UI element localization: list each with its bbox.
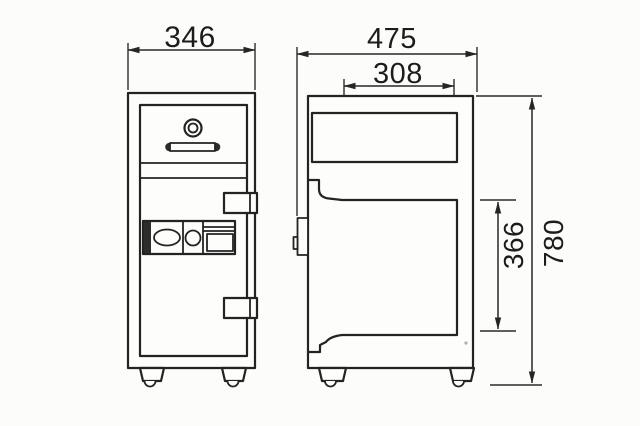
side-right-foot-body [450,368,474,381]
side-lock-spindle [294,218,309,255]
side-right-foot [450,368,474,387]
hinge-bottom-body [224,298,257,318]
pull-handle [165,143,220,152]
front-right-foot [222,368,246,387]
front-right-foot-roller [228,381,239,387]
lock-panel-hatch-strip [144,222,151,253]
front-right-foot-body [222,368,246,381]
lock-panel-outline [143,221,235,254]
safe-dimension-diagram: 346 475 308 366 780 [0,0,640,426]
front-left-foot-roller [145,381,156,387]
front-left-foot [140,368,164,387]
hinge-bottom [224,298,257,318]
dim-475-label: 475 [367,23,417,55]
handle-bar [170,143,215,151]
side-left-foot-roller [325,381,336,387]
dim-front-width: 346 [128,21,255,90]
front-left-foot-body [140,368,164,381]
dim-inner-depth: 308 [344,58,454,97]
side-right-foot-roller [453,381,464,387]
hinge-top [224,193,257,213]
dim-308-label: 308 [373,58,423,90]
side-left-foot [319,368,346,387]
safe-dimension-drawing: 346 475 308 366 780 [0,0,640,426]
hinge-top-body [224,193,257,213]
dim-346-label: 346 [164,21,216,54]
dim-366-label: 366 [498,221,529,269]
scan-speck [464,341,467,344]
side-view [294,96,475,387]
side-lock-nub [294,237,298,249]
side-body-outline [308,96,473,368]
dim-780-label: 780 [538,219,569,267]
side-left-foot-body [319,368,346,381]
lock-panel [143,221,235,254]
front-view [128,93,257,387]
side-lock-housing [298,218,309,255]
dim-inner-height: 366 [480,200,529,331]
